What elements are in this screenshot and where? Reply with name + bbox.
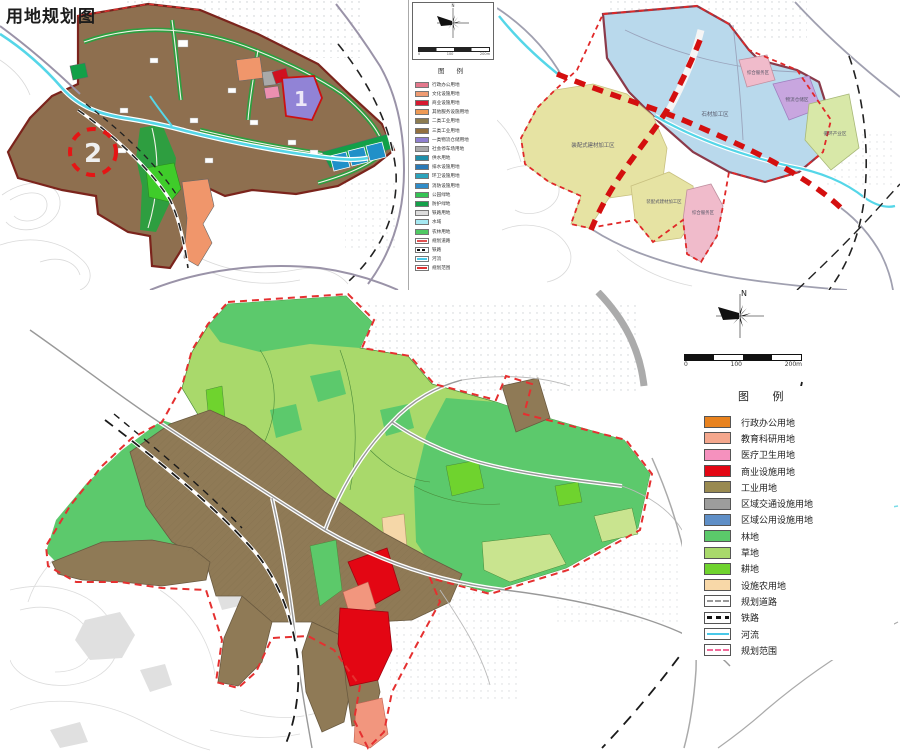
legend-item-label: 规划道路	[432, 238, 450, 244]
legend-swatch-fill	[704, 498, 731, 510]
legend-swatch-river	[704, 628, 731, 640]
legend-item-label: 区域交通设施用地	[741, 497, 813, 510]
legend-item-label: 耕地	[741, 562, 759, 575]
legend-item-label: 农林用地	[432, 229, 450, 235]
legend-item-label: 草地	[741, 546, 759, 559]
legend-item: 铁路	[415, 245, 497, 254]
legend-item-label: 消防设施用地	[432, 183, 460, 189]
legend-swatch-fill	[415, 146, 429, 152]
legend-swatch-fill	[415, 219, 429, 225]
boundary-symbol	[417, 267, 428, 269]
legend-item-label: 工业用地	[741, 481, 777, 494]
compass-north-icon	[433, 6, 473, 40]
legend-item-label: 区域公用设施用地	[741, 513, 813, 526]
legend-item-label: 行政办公用地	[432, 82, 460, 88]
legend-item: 林地	[704, 528, 894, 544]
legend-item: 供水用地	[415, 154, 497, 163]
legend-item: 耕地	[704, 561, 894, 577]
legend-header: 图 例	[738, 388, 894, 404]
legend-swatch-fill	[704, 449, 731, 461]
legend-bottom: 图 例 行政办公用地教育科研用地医疗卫生用地商业设施用地工业用地区域交通设施用地…	[682, 386, 894, 660]
scale-tick: 100	[731, 361, 742, 368]
legend-item-label: 河流	[432, 256, 441, 262]
legend-item-label: 设施农用地	[741, 579, 786, 592]
legend-item: 农林用地	[415, 227, 497, 236]
legend-item: 河流	[415, 255, 497, 264]
legend-item: 商业设施用地	[704, 463, 894, 479]
compass-north-icon	[712, 290, 768, 342]
legend-item: 社会停车场用地	[415, 144, 497, 153]
legend-item-label: 医疗卫生用地	[741, 448, 795, 461]
legend-swatch-fill	[415, 229, 429, 235]
scale-tick: 100	[447, 52, 454, 56]
legend-item: 商业设施用地	[415, 98, 497, 107]
legend-item-label: 供水用地	[432, 155, 450, 161]
zone-label: 物流仓储区	[786, 96, 809, 103]
zone-label: 综合服务区	[747, 69, 770, 76]
legend-swatch-fill	[704, 465, 731, 477]
road-symbol	[417, 240, 428, 242]
legend-item-label: 二类工业用地	[432, 118, 460, 124]
legend-swatch-fill	[415, 173, 429, 179]
legend-item-label: 排水设施用地	[432, 164, 460, 170]
legend-item: 行政办公用地	[704, 414, 894, 430]
legend-item: 河流	[704, 626, 894, 642]
scale-bar: 0 100 200m	[418, 47, 490, 56]
scale-tick: 0	[418, 52, 420, 56]
zone-label: 石材加工区	[702, 110, 730, 118]
scale-tick: 0	[684, 361, 688, 368]
legend-swatch-fill	[415, 91, 429, 97]
legend-item: 一类物流仓储用地	[415, 135, 497, 144]
legend-item: 规划道路	[415, 236, 497, 245]
legend-item: 排水设施用地	[415, 163, 497, 172]
legend-item: 规划范围	[704, 642, 894, 658]
legend-item-label: 教育科研用地	[741, 432, 795, 445]
legend-swatch-fill	[704, 481, 731, 493]
legend-swatch-fill	[415, 164, 429, 170]
legend3-items: 行政办公用地教育科研用地医疗卫生用地商业设施用地工业用地区域交通设施用地区域公用…	[682, 414, 894, 658]
page-title: 用地规划图	[6, 2, 96, 27]
legend-item-label: 公园绿地	[432, 192, 450, 198]
legend-item: 工业用地	[704, 479, 894, 495]
map-panel-topleft: 1 2 N 0 100 200m	[0, 0, 497, 290]
scale-bar: 0 100 200m	[684, 354, 802, 368]
legend-item: 区域公用设施用地	[704, 512, 894, 528]
legend-swatch-fill	[704, 432, 731, 444]
legend-item: 行政办公用地	[415, 80, 497, 89]
legend-item: 文化设施用地	[415, 89, 497, 98]
legend-item-label: 规划范围	[432, 265, 450, 271]
compass: N	[712, 290, 776, 352]
legend-topleft: N 0 100 200m 图 例 行政办公用地	[408, 0, 497, 290]
legend1-items: 行政办公用地文化设施用地商业设施用地其他服务设施用地二类工业用地三类工业用地一类…	[415, 80, 497, 273]
legend-swatch-road	[415, 238, 429, 244]
legend-item-label: 规划道路	[741, 595, 777, 608]
legend-swatch-fill	[415, 137, 429, 143]
legend-swatch-fill	[415, 201, 429, 207]
legend-item: 设施农用地	[704, 577, 894, 593]
legend-item: 教育科研用地	[704, 430, 894, 446]
legend-item-label: 铁路用地	[432, 210, 450, 216]
legend-item-label: 铁路	[741, 611, 759, 624]
scale-tick: 200m	[785, 361, 802, 368]
legend-item: 铁路用地	[415, 209, 497, 218]
legend-item: 公园绿地	[415, 190, 497, 199]
legend-item: 防护绿地	[415, 199, 497, 208]
legend-item-label: 铁路	[432, 247, 441, 253]
legend-swatch-boundary	[415, 265, 429, 271]
legend-item-label: 其他服务设施用地	[432, 109, 469, 115]
legend-item: 水域	[415, 218, 497, 227]
zone-label: 装配式建材加工区	[646, 198, 682, 205]
legend-item: 草地	[704, 544, 894, 560]
legend-swatch-fill	[415, 192, 429, 198]
zone-label: 装配式建材加工区	[571, 141, 615, 149]
legend-item-label: 社会停车场用地	[432, 146, 464, 152]
legend-swatch-fill	[415, 128, 429, 134]
legend-item: 环卫设施用地	[415, 172, 497, 181]
legend-swatch-fill	[415, 183, 429, 189]
legend-swatch-fill	[415, 210, 429, 216]
legend-swatch-fill	[415, 82, 429, 88]
legend-item-label: 商业设施用地	[432, 100, 460, 106]
boundary-symbol	[707, 649, 729, 651]
legend-swatch-fill	[704, 547, 731, 559]
river-symbol	[417, 258, 428, 260]
legend-item: 二类工业用地	[415, 117, 497, 126]
legend-swatch-fill	[415, 109, 429, 115]
legend-item: 铁路	[704, 610, 894, 626]
legend-swatch-fill	[704, 579, 731, 591]
legend-item: 消防设施用地	[415, 181, 497, 190]
compass-box: N 0 100 200m	[412, 2, 494, 60]
legend-item-label: 林地	[741, 530, 759, 543]
marker-1: 1	[294, 87, 308, 111]
road-symbol	[707, 600, 729, 602]
svg-text:2: 2	[84, 139, 102, 169]
legend-swatch-railway	[415, 247, 429, 253]
legend-item: 规划道路	[704, 593, 894, 609]
legend-item-label: 商业设施用地	[741, 465, 795, 478]
legend-swatch-railway	[704, 612, 731, 624]
legend-header: 图 例	[409, 65, 497, 75]
railway-symbol	[417, 249, 428, 251]
legend-item-label: 规划范围	[741, 644, 777, 657]
legend-swatch-fill	[704, 514, 731, 526]
zone-label: 循环产业区	[824, 130, 847, 137]
legend-item: 其他服务设施用地	[415, 108, 497, 117]
legend-item-label: 三类工业用地	[432, 128, 460, 134]
legend-swatch-fill	[415, 118, 429, 124]
map-topright-svg: 石材加工区 综合服务区 物流仓储区 循环产业区 装配式建材加工区 装配式建材加工…	[497, 0, 900, 290]
legend-item-label: 环卫设施用地	[432, 173, 460, 179]
legend-item: 医疗卫生用地	[704, 447, 894, 463]
legend-swatch-river	[415, 256, 429, 262]
zone-service-2	[683, 184, 723, 262]
legend-swatch-fill	[704, 530, 731, 542]
svg-text:1: 1	[294, 87, 308, 111]
legend-swatch-road	[704, 595, 731, 607]
zone-label: 综合服务区	[692, 209, 715, 216]
legend-swatch-fill	[415, 100, 429, 106]
legend-item: 区域交通设施用地	[704, 495, 894, 511]
legend-item-label: 防护绿地	[432, 201, 450, 207]
legend-item-label: 行政办公用地	[741, 416, 795, 429]
scale-bar-segments	[684, 354, 802, 361]
scale-tick: 200m	[480, 52, 490, 56]
legend-swatch-fill	[704, 416, 731, 428]
map-panel-bottom: N 0 100 200m 图 例 行政办公用地教育科研用地医疗卫生用地商业设施用…	[10, 290, 900, 751]
railway-symbol	[707, 616, 729, 619]
legend-item: 规划范围	[415, 264, 497, 273]
legend-item-label: 水域	[432, 219, 441, 225]
legend-swatch-fill	[415, 155, 429, 161]
legend-item-label: 一类物流仓储用地	[432, 137, 469, 143]
legend-swatch-fill	[704, 563, 731, 575]
legend-item-label: 文化设施用地	[432, 91, 460, 97]
legend-item-label: 河流	[741, 628, 759, 641]
legend-item: 三类工业用地	[415, 126, 497, 135]
map-panel-topright: 石材加工区 综合服务区 物流仓储区 循环产业区 装配式建材加工区 装配式建材加工…	[497, 0, 900, 290]
river-symbol	[707, 633, 729, 635]
legend-swatch-boundary	[704, 644, 731, 656]
